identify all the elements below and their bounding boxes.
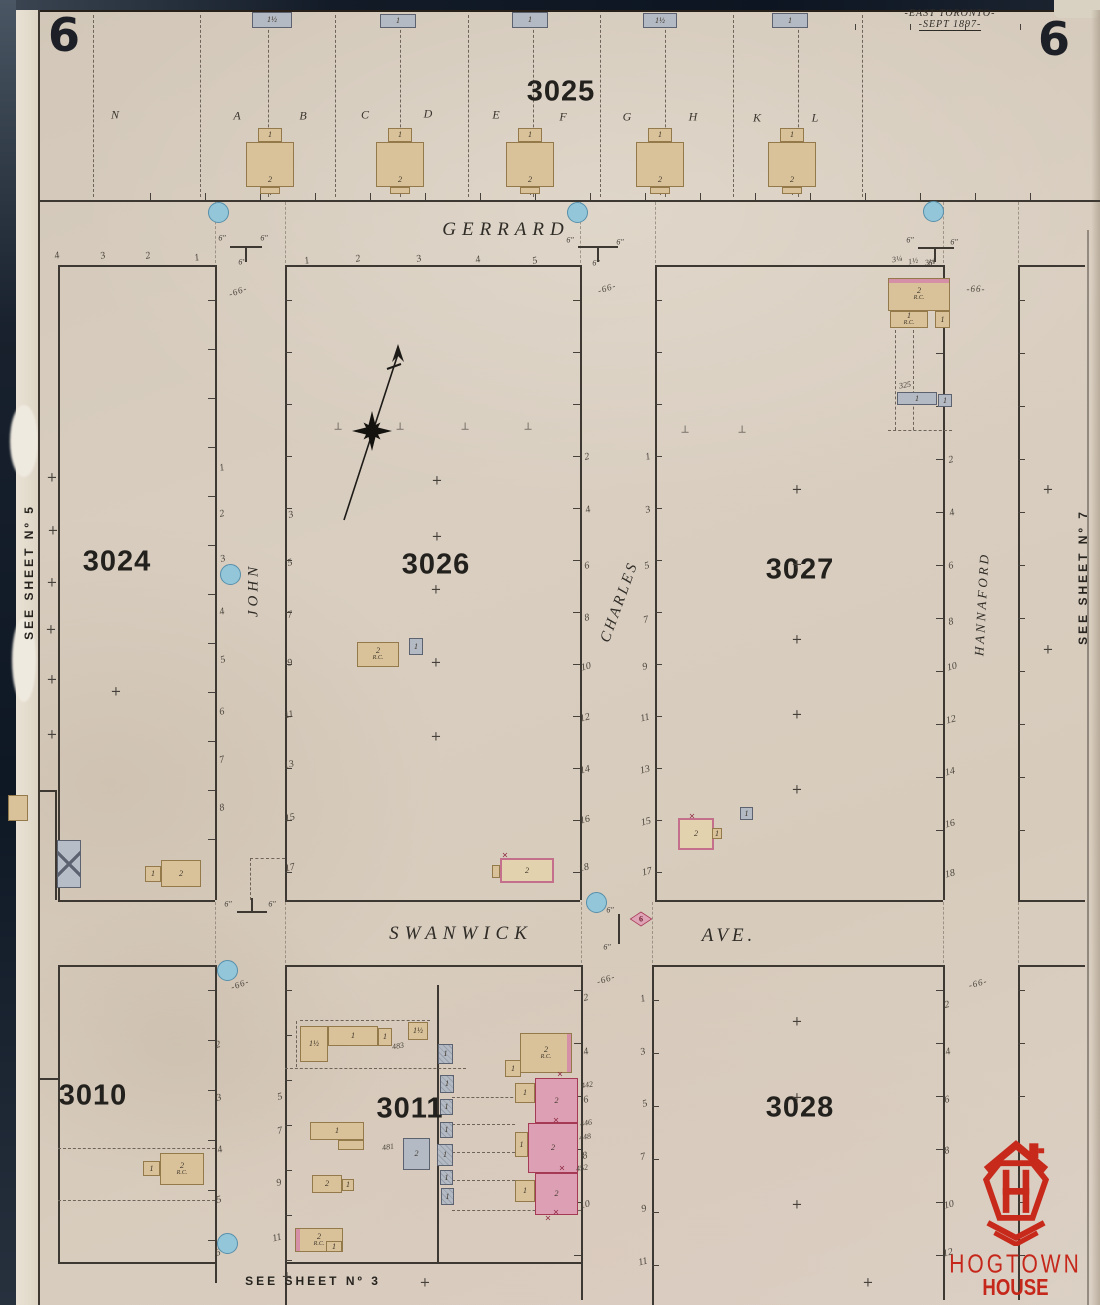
lot-number: 1 (639, 993, 647, 1005)
lot-line-dashed (733, 15, 734, 197)
lot-number: 1 (193, 252, 201, 264)
map-content-layer: 1½111½12R.C.122R.C.1R.C.111211122R.C.11½… (0, 0, 1100, 1305)
building-x-mark: × (553, 1208, 560, 1217)
survey-cross: + (47, 728, 58, 743)
survey-cross: + (432, 530, 443, 545)
block-number: 3011 (377, 1093, 444, 1126)
lot-number: 3 (99, 250, 107, 262)
building-storeys-label: 2 (555, 1190, 559, 1198)
lot-number: 11 (271, 1232, 283, 1245)
building-footprint: 1 (378, 1028, 392, 1046)
lot-number: 15 (640, 815, 652, 828)
publisher-logo: HOGTOWN HOUSE HISTORIES (938, 1140, 1093, 1305)
lot-tick (1018, 724, 1025, 725)
building-footprint: 2 (161, 860, 201, 887)
survey-cross: + (48, 524, 59, 539)
building-footprint (390, 187, 410, 194)
survey-cross: + (792, 1198, 803, 1213)
lot-tick (655, 768, 662, 769)
lot-tick (1018, 565, 1025, 566)
lot-tick (285, 1125, 292, 1126)
building-x-mark: × (559, 1164, 566, 1173)
building-storeys-label: 1 (332, 1243, 336, 1251)
lot-tick (1018, 512, 1025, 513)
lot-letter: B (299, 109, 306, 124)
building-storeys-label: 2 (268, 176, 272, 184)
lot-tick (205, 193, 206, 200)
survey-mark: ⊥ (738, 425, 747, 436)
survey-cross: + (1043, 483, 1054, 498)
lot-tick (652, 1159, 659, 1160)
lot-number: 7 (639, 1151, 647, 1163)
boundary-line (652, 965, 654, 1305)
lot-tick (936, 990, 943, 991)
boundary-line (285, 1262, 581, 1264)
building-storeys-label: 2 (179, 870, 183, 878)
building-storeys-label: 1 (446, 1193, 450, 1201)
lot-tick (285, 990, 292, 991)
lot-letter: G (623, 110, 632, 125)
lot-tick (655, 716, 662, 717)
lot-line-dashed (296, 1021, 297, 1067)
survey-cross: + (47, 471, 58, 486)
lot-number: 3 (219, 553, 227, 565)
lot-tick (652, 1000, 659, 1001)
lot-number: 4 (216, 1144, 224, 1156)
lot-tick (285, 404, 292, 405)
lot-tick (285, 1080, 292, 1081)
lot-tick (208, 1090, 215, 1091)
lot-number: 5 (643, 560, 651, 572)
building-footprint: 1 (515, 1083, 535, 1103)
lot-tick (208, 349, 215, 350)
pipe-size-label: 6″ (592, 259, 599, 268)
building-footprint: 2 (678, 818, 714, 850)
survey-cross: + (111, 685, 122, 700)
street-width-label: -66- (967, 284, 986, 294)
building-x-mark: × (502, 851, 509, 860)
building-storeys-label: 1 (346, 1181, 350, 1189)
building-footprint: 1 (780, 128, 804, 142)
lot-tick (652, 1106, 659, 1107)
pipe-size-label: 6″ (268, 900, 275, 909)
survey-cross: + (282, 1270, 293, 1285)
map-annotation: 325 (898, 380, 911, 391)
street-name: CHARLES (597, 559, 642, 645)
lot-tick (208, 398, 215, 399)
map-annotation: 452 (575, 1163, 588, 1174)
lot-number: 17 (641, 865, 653, 878)
building-footprint: 1 (938, 394, 952, 407)
lot-tick (425, 193, 426, 200)
lot-number: 8 (947, 616, 955, 628)
lot-tick (574, 990, 581, 991)
building-storeys-label: 1 (520, 1141, 524, 1149)
boundary-line (655, 265, 657, 900)
lot-tick (936, 830, 943, 831)
lot-number: 10 (580, 660, 592, 673)
building-storeys-label: 2 (551, 1144, 555, 1152)
building-footprint: 1 (437, 1144, 453, 1166)
building-footprint: 1 (388, 128, 412, 142)
boundary-line (655, 900, 943, 902)
lot-line-dashed (250, 858, 285, 859)
building-footprint: 1 (328, 1026, 378, 1046)
building-storeys-label: 1 (511, 1065, 515, 1073)
survey-cross: + (792, 483, 803, 498)
building-storeys-label: 1 (445, 1174, 449, 1182)
lot-line-dashed (452, 1152, 515, 1153)
lot-letter: A (233, 109, 240, 124)
lot-tick (590, 193, 591, 200)
lot-line-dashed (652, 902, 653, 963)
lot-number: 4 (218, 606, 226, 618)
lot-tick (1018, 671, 1025, 672)
map-annotation: 448 (578, 1132, 591, 1143)
lot-number: 2 (218, 508, 226, 520)
lot-tick (285, 1035, 292, 1036)
lot-line-dashed (895, 330, 896, 430)
lot-tick (655, 872, 662, 873)
lot-tick (936, 671, 943, 672)
boundary-line (58, 965, 215, 967)
see-sheet-label: SEE SHEET Nº 3 (245, 1274, 381, 1288)
building-footprint: 2 (312, 1175, 342, 1193)
lot-number: 8 (218, 802, 226, 814)
building-storeys-label: 1 (398, 131, 402, 139)
lot-letter: F (559, 110, 566, 125)
lot-tick (655, 612, 662, 613)
lot-line-dashed (600, 15, 601, 197)
lot-line-dashed (468, 15, 469, 197)
building-material-label: R.C. (541, 1054, 552, 1061)
building-footprint: 1 (515, 1132, 528, 1157)
lot-tick (573, 404, 580, 405)
building-footprint: 1 (380, 14, 416, 28)
water-utility-marker (208, 202, 229, 223)
building-storeys-label: 2 (658, 176, 662, 184)
building-storeys-label: 1 (915, 395, 919, 403)
building-footprint: 1 (648, 128, 672, 142)
street-name: HANNAFORD (971, 552, 992, 657)
building-storeys-label: 2 (398, 176, 402, 184)
boundary-line (215, 965, 217, 1283)
lot-line-dashed (1018, 202, 1019, 263)
lot-number: 6 (218, 706, 226, 718)
building-storeys-label: 1 (715, 830, 719, 838)
lot-number: 3 (415, 253, 423, 265)
map-sheet: 6 6 -EAST TORONTO- -SEPT 1897- 1½111½12R… (0, 0, 1100, 1305)
building-footprint: 2 (376, 142, 424, 187)
building-footprint: 2R.C. (357, 642, 399, 667)
building-storeys-label: 2 (325, 1180, 329, 1188)
building-footprint: 2 (403, 1138, 430, 1170)
boundary-line (58, 1262, 215, 1264)
survey-cross: + (46, 623, 57, 638)
boundary-line (215, 265, 217, 900)
building-storeys-label: 1 (383, 1033, 387, 1041)
lot-number: 14 (579, 763, 591, 776)
lot-number: 3 (287, 509, 295, 521)
lot-line-dashed (285, 202, 286, 263)
lot-tick (936, 512, 943, 513)
boundary-line (285, 265, 287, 900)
pipe-size-label: 6″ (260, 234, 267, 243)
lot-tick (1018, 830, 1025, 831)
lot-number: 10 (946, 660, 958, 673)
lot-tick (573, 352, 580, 353)
water-utility-marker (567, 202, 588, 223)
building-footprint: 1 (712, 828, 722, 839)
lot-tick (150, 193, 151, 200)
lot-tick (285, 352, 292, 353)
lot-tick (260, 193, 261, 200)
lot-tick (573, 664, 580, 665)
lot-letter: H (689, 110, 698, 125)
lot-tick (208, 692, 215, 693)
building-storeys-label: 2 (180, 1162, 184, 1170)
lot-tick (652, 1265, 659, 1266)
boundary-line (655, 265, 943, 267)
lot-line-dashed (300, 1020, 430, 1021)
lot-tick (208, 1140, 215, 1141)
boundary-line (1018, 265, 1020, 900)
building-storeys-label: 1 (941, 316, 945, 324)
lot-tick (1018, 990, 1025, 991)
building-material-label: R.C. (314, 1241, 325, 1248)
survey-cross: + (432, 474, 443, 489)
water-utility-marker (586, 892, 607, 913)
building-storeys-label: 1 (658, 131, 662, 139)
building-footprint (8, 795, 28, 821)
boundary-line (58, 265, 215, 267)
lot-number: 12 (945, 713, 957, 726)
boundary-line (285, 965, 287, 1305)
lot-tick (1030, 193, 1031, 200)
lot-tick (855, 24, 856, 30)
lot-line-dashed (58, 1200, 215, 1201)
lot-number: 4 (582, 1046, 590, 1058)
building-footprint: 2 (528, 1123, 578, 1173)
boundary-line (1018, 265, 1085, 267)
lot-tick (936, 618, 943, 619)
boundary-line (580, 265, 582, 900)
lot-tick (1018, 353, 1025, 354)
survey-cross: + (47, 673, 58, 688)
street-width-label: -66- (968, 976, 989, 991)
building-footprint: 1R.C. (890, 311, 928, 328)
building-footprint: 1 (258, 128, 282, 142)
survey-cross: + (863, 1276, 874, 1291)
pipe-size-label: 6″ (928, 259, 935, 268)
water-utility-marker (217, 960, 238, 981)
building-storeys-label: 1 (150, 1165, 154, 1173)
lot-tick (208, 496, 215, 497)
lot-number: 2 (947, 454, 955, 466)
lot-line-dashed (581, 902, 582, 963)
lot-number: 9 (641, 661, 649, 673)
lot-tick (208, 741, 215, 742)
lot-tick (480, 193, 481, 200)
lot-tick (208, 545, 215, 546)
lot-number: 6 (947, 560, 955, 572)
lot-tick (208, 643, 215, 644)
boundary-line (652, 965, 943, 967)
lot-number: 9 (286, 657, 294, 669)
building-footprint: 1½ (643, 13, 677, 28)
lot-number: 2 (144, 250, 152, 262)
lot-line-dashed (215, 902, 216, 963)
survey-cross: + (431, 656, 442, 671)
building-storeys-label: 1 (523, 1089, 527, 1097)
building-footprint: 2R.C. (888, 278, 950, 311)
lot-tick (936, 724, 943, 725)
lot-tick (1018, 1043, 1025, 1044)
lot-number: 14 (944, 765, 956, 778)
lot-number: 17 (284, 861, 296, 874)
building-storeys-label: 1 (907, 312, 911, 320)
water-utility-marker (923, 201, 944, 222)
lot-line-dashed (285, 1068, 466, 1069)
lot-tick (645, 193, 646, 200)
lot-number: 18 (578, 861, 590, 874)
lot-number: 11 (283, 709, 295, 722)
lot-tick (936, 459, 943, 460)
building-storeys-label: 2 (555, 1097, 559, 1105)
building-footprint: 1½ (300, 1026, 328, 1062)
lot-tick (285, 1260, 292, 1261)
building-storeys-label: 1 (445, 1126, 449, 1134)
lot-tick (573, 300, 580, 301)
water-pipe-line (237, 911, 267, 913)
building-footprint (57, 840, 81, 888)
lot-tick (315, 193, 316, 200)
boundary-line (38, 10, 40, 1305)
lot-number: 15 (284, 811, 296, 824)
building-footprint: 2 (506, 142, 554, 187)
block-number: 3010 (59, 1080, 128, 1113)
building-footprint: 1 (440, 1075, 454, 1093)
lot-number: 5 (219, 654, 227, 666)
lot-number: 11 (639, 712, 651, 725)
building-storeys-label: 1 (943, 397, 947, 405)
lot-letter: N (111, 108, 119, 123)
lot-tick (285, 1215, 292, 1216)
lot-letter: L (812, 111, 819, 126)
survey-cross: + (47, 576, 58, 591)
lot-tick (936, 777, 943, 778)
lot-number: 7 (276, 1125, 284, 1137)
publisher-name-line2: HOUSE HISTORIES (940, 1276, 1092, 1305)
building-storeys-label: 1½ (655, 17, 665, 25)
lot-tick (1018, 300, 1025, 301)
lot-tick (208, 790, 215, 791)
lot-tick (285, 1170, 292, 1171)
street-width-label: -66- (596, 280, 617, 295)
pipe-size-label: 6″ (238, 258, 245, 267)
lot-tick (652, 1212, 659, 1213)
building-footprint: 1 (935, 311, 950, 328)
building-footprint: 1 (342, 1179, 354, 1191)
lot-number: 8 (583, 612, 591, 624)
lot-number: 7 (286, 609, 294, 621)
building-material-label: R.C. (904, 320, 915, 327)
pipe-size-label: 6″ (218, 234, 225, 243)
lot-line-dashed (452, 1124, 515, 1125)
pipe-size-label: 6″ (603, 943, 610, 952)
lot-tick (965, 24, 966, 30)
lot-tick (936, 1096, 943, 1097)
lot-tick (208, 1190, 215, 1191)
lot-letter: K (753, 111, 761, 126)
street-width-label: -66- (595, 971, 616, 986)
lot-line-dashed (888, 430, 952, 431)
lot-number: 10 (579, 1198, 591, 1211)
lot-tick (1018, 406, 1025, 407)
water-pipe-line (618, 914, 620, 944)
lot-number: 4 (944, 1046, 952, 1058)
lot-number: 9 (640, 1203, 648, 1215)
building-storeys-label: 1 (335, 1127, 339, 1135)
lot-tick (655, 404, 662, 405)
boundary-line (285, 965, 581, 967)
lot-line-dashed (452, 1180, 515, 1181)
lot-number: 6 (583, 560, 591, 572)
publisher-logo-icon (973, 1140, 1059, 1246)
building-footprint: 1 (515, 1180, 535, 1202)
lot-tick (655, 560, 662, 561)
building-footprint: 1 (438, 1044, 453, 1064)
building-storeys-label: 1 (445, 1103, 449, 1111)
lot-tick (936, 1043, 943, 1044)
lot-number: 16 (579, 813, 591, 826)
lot-tick (936, 353, 943, 354)
lot-number: 11 (637, 1256, 649, 1269)
lot-tick (655, 456, 662, 457)
lot-line-dashed (93, 15, 94, 197)
map-annotation: 3¼ (891, 254, 902, 265)
lot-tick (573, 508, 580, 509)
lot-tick (655, 352, 662, 353)
block-number: 3025 (527, 76, 596, 109)
lot-line-dashed (335, 15, 336, 197)
lot-line-dashed (862, 15, 863, 197)
building-storeys-label: 1 (745, 810, 749, 818)
lot-number: 3 (639, 1046, 647, 1058)
building-footprint: 2R.C. (160, 1153, 204, 1185)
lot-tick (655, 664, 662, 665)
building-footprint: 2 (768, 142, 816, 187)
lot-tick (574, 1255, 581, 1256)
see-sheet-label: SEE SHEET Nº 5 (22, 504, 36, 640)
street-name: SWANWICK (389, 923, 533, 945)
lot-tick (535, 193, 536, 200)
lot-number: 16 (944, 817, 956, 830)
building-storeys-label: 1 (523, 1187, 527, 1195)
pipe-size-label: 6″ (906, 236, 913, 245)
survey-mark: ⊥ (681, 425, 690, 436)
building-storeys-label: 1 (445, 1080, 449, 1088)
lot-line-dashed (250, 858, 251, 900)
street-name: AVE. (702, 925, 757, 947)
lot-line-dashed (1018, 902, 1019, 963)
building-material-label: R.C. (373, 655, 384, 662)
lot-tick (655, 820, 662, 821)
survey-mark: ⊥ (461, 422, 470, 433)
building-footprint: 1 (440, 1170, 453, 1185)
survey-cross: + (431, 583, 442, 598)
lot-tick (975, 193, 976, 200)
